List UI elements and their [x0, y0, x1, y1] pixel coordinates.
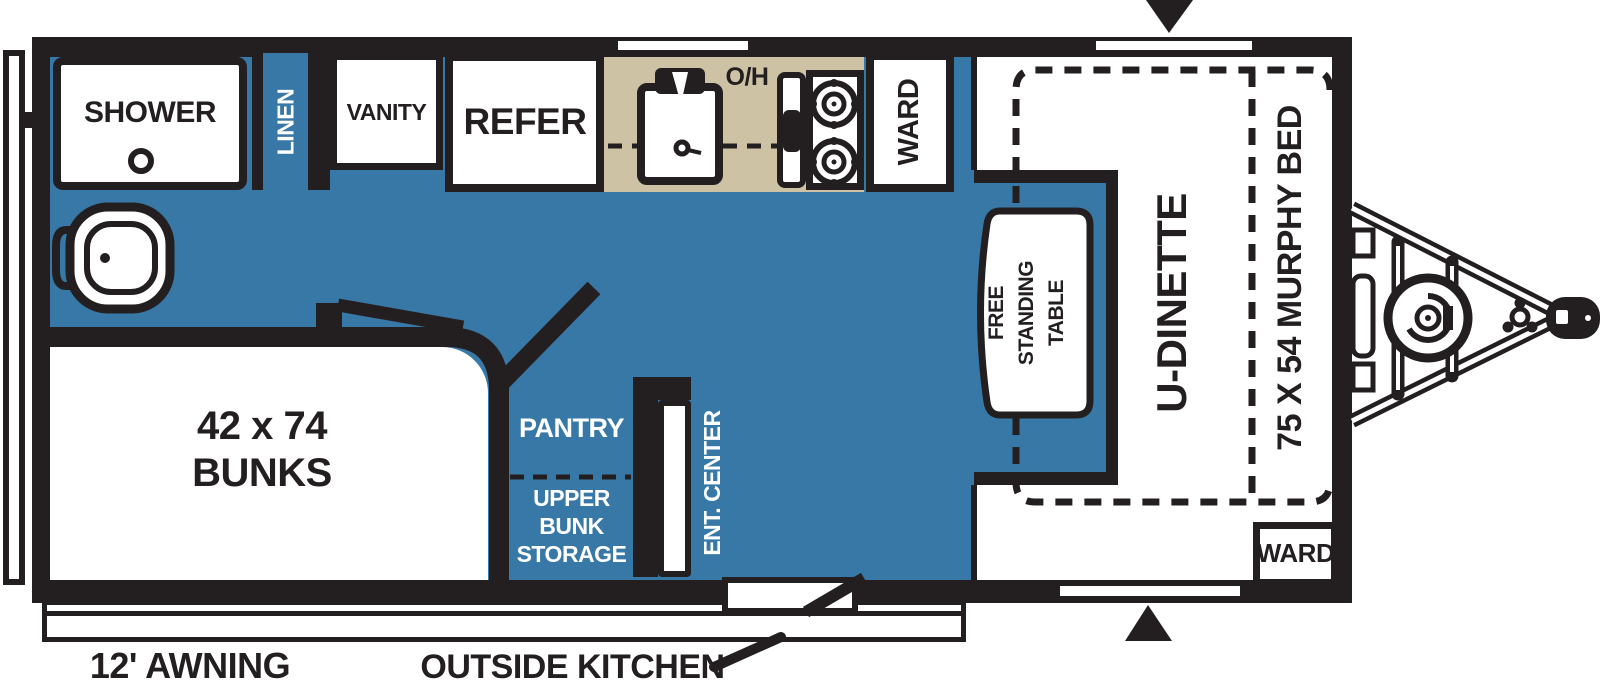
- overhead-label: O/H: [722, 62, 772, 92]
- shower-label: SHOWER: [60, 95, 240, 131]
- table-label-table: TABLE: [1044, 215, 1070, 411]
- ent-center-label: ENT. CENTER: [698, 393, 726, 573]
- labels: SHOWER LINEN VANITY REFER O/H WARD 42 x …: [0, 0, 1600, 694]
- outside-kitchen-label: OUTSIDE KITCHEN: [430, 649, 715, 687]
- floorplan: SHOWER LINEN VANITY REFER O/H WARD 42 x …: [0, 0, 1600, 694]
- table-label-standing: STANDING: [1014, 215, 1040, 411]
- upper-bunk-storage-label: UPPER BUNK STORAGE: [508, 482, 635, 570]
- awning-label: 12' AWNING: [60, 646, 320, 686]
- u-dinette-label: U-DINETTE: [1146, 188, 1198, 418]
- bunks-size: 42 x 74: [197, 403, 327, 450]
- bunks-label: 42 x 74 BUNKS: [60, 400, 464, 500]
- ubs-line1: UPPER: [533, 484, 610, 512]
- ubs-line3: STORAGE: [517, 540, 627, 568]
- murphy-bed-label: 75 X 54 MURPHY BED: [1269, 82, 1313, 474]
- linen-label: LINEN: [271, 60, 301, 185]
- pantry-label: PANTRY: [508, 413, 635, 443]
- bunks-word: BUNKS: [192, 450, 332, 497]
- ubs-line2: BUNK: [539, 512, 603, 540]
- vanity-label: VANITY: [334, 94, 439, 130]
- refer-label: REFER: [450, 100, 600, 144]
- table-label-free: FREE: [984, 215, 1010, 411]
- wardrobe-bottom-label: WARD: [1255, 540, 1336, 568]
- wardrobe-top-label: WARD: [892, 57, 926, 187]
